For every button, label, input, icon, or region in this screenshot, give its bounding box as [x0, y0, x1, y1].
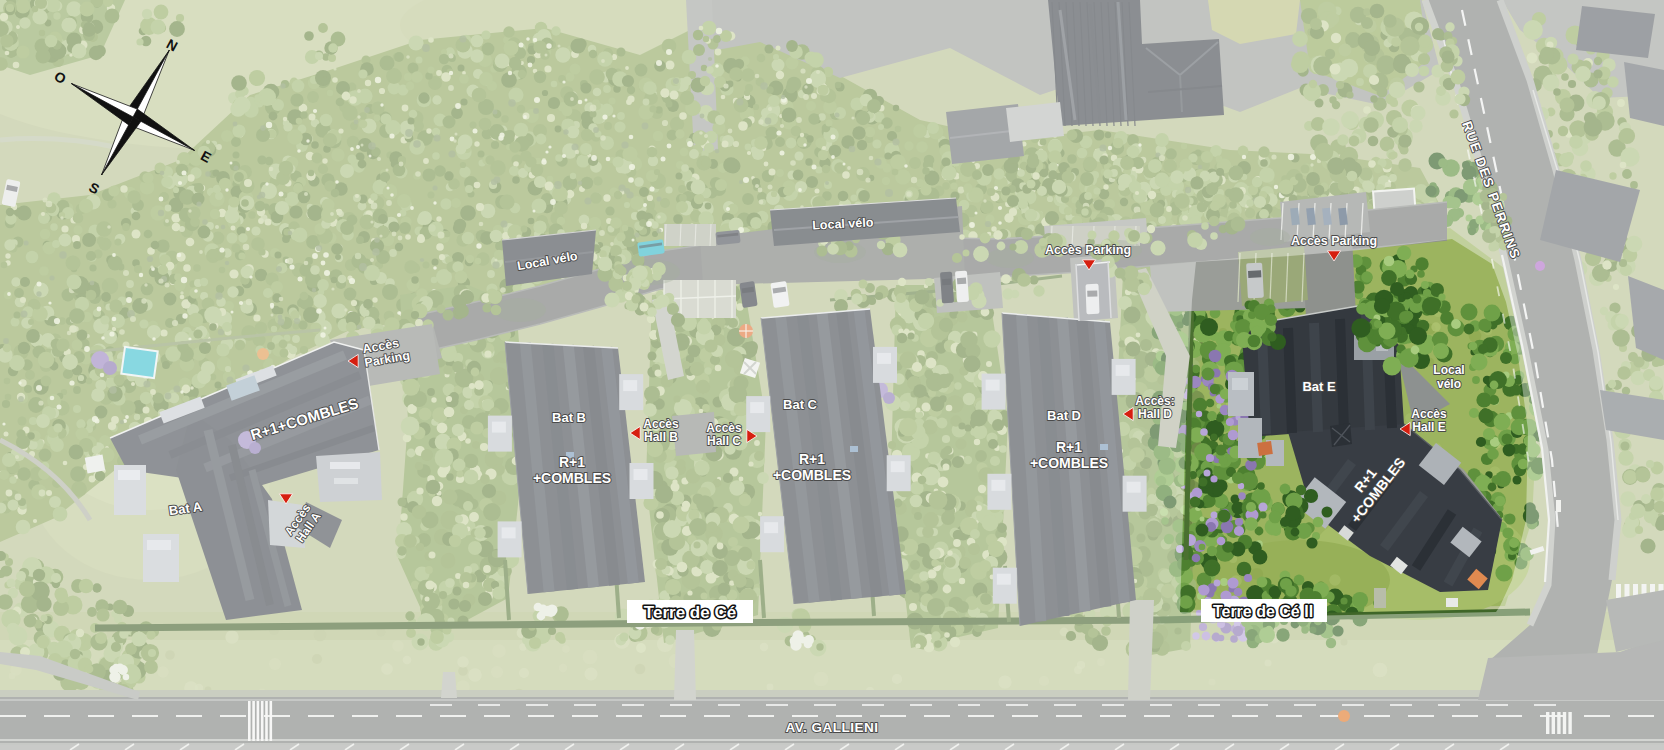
svg-text:Accès: Accès [706, 421, 742, 435]
svg-text:Bat C: Bat C [783, 397, 818, 412]
svg-text:AV. GALLIENI: AV. GALLIENI [785, 720, 878, 735]
svg-text:+COMBLES: +COMBLES [773, 467, 851, 483]
svg-text:Terre de Cé: Terre de Cé [644, 603, 736, 622]
svg-text:Bat E: Bat E [1302, 379, 1336, 394]
svg-text:R+1: R+1 [799, 451, 825, 467]
svg-text:Accès: Accès [643, 417, 679, 431]
svg-text:Bat D: Bat D [1047, 408, 1081, 423]
svg-text:Terre de Cé II: Terre de Cé II [1213, 603, 1313, 620]
svg-text:Hall E: Hall E [1412, 420, 1445, 434]
svg-text:Local: Local [1433, 363, 1464, 377]
svg-text:Hall C: Hall C [707, 434, 741, 448]
svg-text:Accès Parking: Accès Parking [1291, 234, 1377, 248]
svg-text:Hall B: Hall B [644, 430, 678, 444]
svg-text:R+1: R+1 [559, 454, 585, 470]
svg-text:Bat B: Bat B [552, 410, 586, 425]
svg-text:+COMBLES: +COMBLES [1030, 455, 1108, 471]
svg-text:vélo: vélo [1437, 377, 1461, 391]
svg-text:Accès:: Accès: [1135, 394, 1174, 408]
svg-text:Accès: Accès [1411, 407, 1447, 421]
svg-text:Accès Parking: Accès Parking [1045, 243, 1131, 257]
svg-text:Hall D: Hall D [1138, 407, 1172, 421]
svg-text:+COMBLES: +COMBLES [533, 470, 611, 486]
svg-text:R+1: R+1 [1056, 439, 1082, 455]
